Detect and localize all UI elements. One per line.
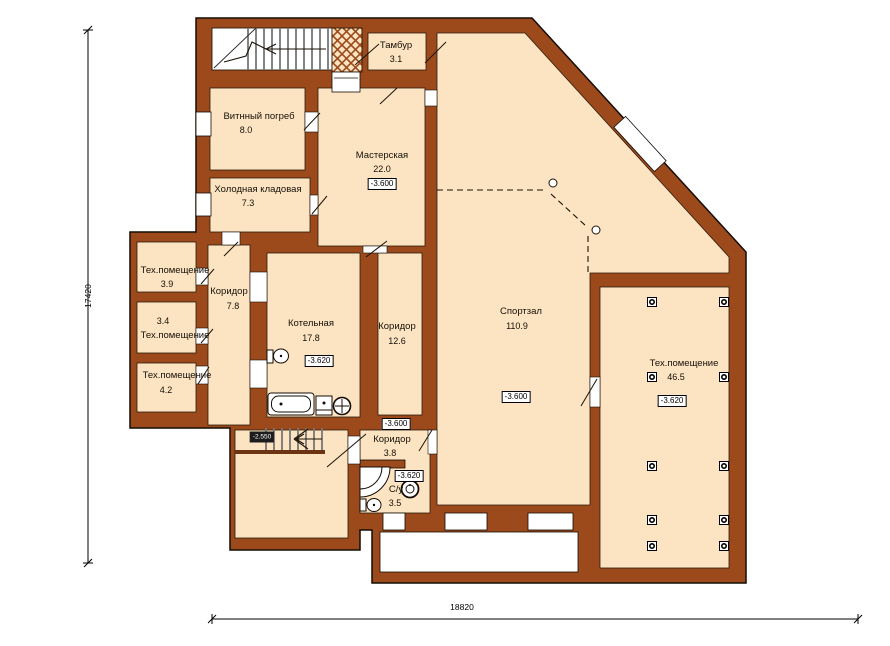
- room-area-kotelnaya: 17.8: [302, 333, 320, 343]
- room-level-masterskaya: -3.600: [368, 178, 397, 190]
- room-area-kladovaya: 7.3: [242, 198, 255, 208]
- porch-window: [332, 72, 360, 92]
- room-name-koridor38: Коридор: [373, 435, 411, 445]
- washbasin-icon: [316, 396, 332, 415]
- room-area-teh465: 46.5: [667, 372, 685, 382]
- dimension-width: 18820: [450, 602, 474, 612]
- floor-teh34: [137, 302, 196, 353]
- porch-hatch: [332, 28, 362, 72]
- floor-tambur: [368, 33, 426, 70]
- room-name-teh34: Тех.помещение: [141, 331, 210, 341]
- toilet-icon: [267, 349, 289, 363]
- room-area-teh42: 4.2: [160, 385, 173, 395]
- room-name-teh465: Тех.помещение: [650, 359, 719, 369]
- floor-teh465: [600, 287, 729, 568]
- room-area-koridor38: 3.8: [384, 448, 397, 458]
- sink-icon: [402, 481, 419, 498]
- floor-plan-drawing: [0, 0, 890, 646]
- floor-pogreb: [210, 88, 305, 170]
- room-area-koridor126: 12.6: [388, 336, 406, 346]
- room-area-sportzal: 110.9: [506, 321, 528, 331]
- round-appliance-icon: [334, 398, 351, 415]
- room-level-su: -3.620: [395, 470, 424, 482]
- room-area-su: 3.5: [389, 498, 402, 508]
- room-area-masterskaya: 22.0: [373, 164, 391, 174]
- room-level-koridor38: -3.600: [382, 418, 411, 430]
- toilet-icon-2: [360, 499, 381, 512]
- room-area-teh39: 3.9: [161, 279, 174, 289]
- room-level-kotelnaya: -3.620: [305, 355, 334, 367]
- room-name-pogreb: Витнный погреб: [223, 112, 294, 122]
- bathtub-icon: [268, 393, 314, 415]
- room-area-teh34: 3.4: [157, 316, 170, 326]
- floor-koridor78: [208, 245, 250, 425]
- room-name-teh42: Тех.помещение: [143, 371, 212, 381]
- room-name-sportzal: Спортзал: [500, 307, 542, 317]
- floor-room-bottom-left: [235, 430, 348, 538]
- room-name-koridor126: Коридор: [378, 322, 416, 332]
- stair-landing-level: -2.550: [250, 432, 274, 443]
- window-bottom-1: [383, 513, 405, 530]
- dimension-height: 17420: [83, 284, 93, 308]
- room-name-kotelnaya: Котельная: [288, 319, 334, 329]
- room-area-tambur: 3.1: [390, 54, 403, 64]
- room-level-teh465: -3.620: [658, 395, 687, 407]
- room-name-masterskaya: Мастерская: [356, 151, 408, 161]
- room-name-kladovaya: Холодная кладовая: [214, 185, 301, 195]
- room-name-su: С/у: [389, 485, 403, 495]
- room-name-koridor78: Коридор: [210, 287, 248, 297]
- window-bottom-3: [528, 513, 573, 530]
- window-well: [380, 532, 578, 572]
- window-left-1: [196, 112, 211, 136]
- window-left-2: [196, 193, 211, 216]
- floor-plan-page: Тамбур 3.1 Витнный погреб 8.0 Мастерская…: [0, 0, 890, 646]
- room-level-sportzal: -3.600: [502, 391, 531, 403]
- room-area-pogreb: 8.0: [240, 125, 253, 135]
- room-name-teh39: Тех.помещение: [141, 266, 210, 276]
- room-area-koridor78: 7.8: [227, 301, 240, 311]
- floor-masterskaya: [318, 88, 425, 246]
- room-name-tambur: Тамбур: [380, 41, 412, 51]
- floor-koridor126: [378, 253, 422, 415]
- window-bottom-2: [445, 513, 487, 530]
